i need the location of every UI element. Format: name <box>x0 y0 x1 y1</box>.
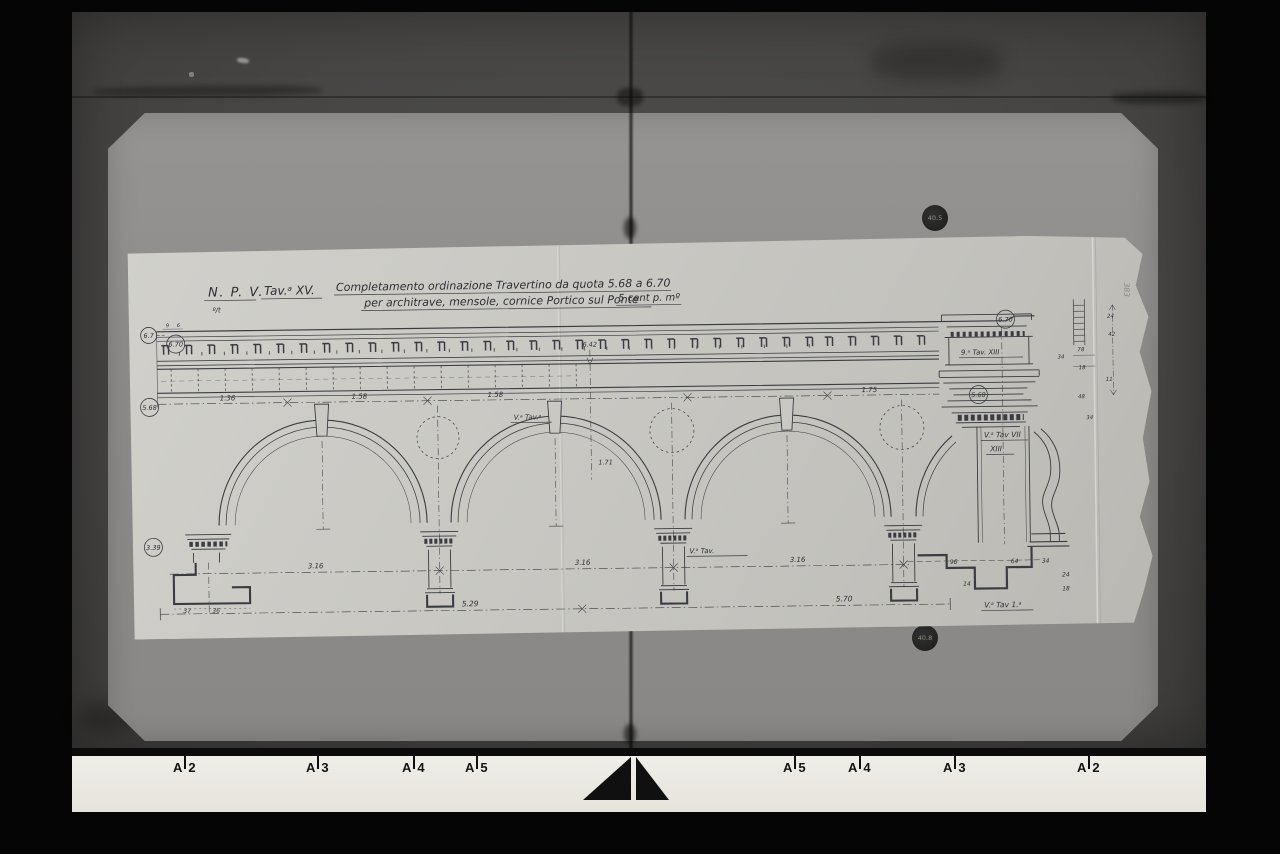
tav-reference: V.ᵃ Tav. <box>689 547 714 555</box>
ruler-tick <box>859 755 861 769</box>
ruler-tick <box>794 755 796 769</box>
ruler-letter: A <box>173 760 182 775</box>
ruler-mark-right-a2: A2 <box>1077 760 1100 775</box>
cornice-lines <box>157 327 939 341</box>
ruler-number: 2 <box>188 760 195 775</box>
ruler-letter: A <box>306 760 315 775</box>
micro-dim: 6 <box>177 323 180 329</box>
title-mark: º/t <box>212 306 221 314</box>
keystone <box>548 401 562 433</box>
dim-label: 5.70 <box>836 594 853 603</box>
ruler-number: 3 <box>321 760 328 775</box>
sheet-fold-right <box>1092 237 1097 627</box>
profile-dim: 42 <box>1108 332 1116 338</box>
dim-label: 1.58 <box>488 391 504 399</box>
ruler-letter: A <box>402 760 411 775</box>
ruler-number: 4 <box>863 760 870 775</box>
right-entablature-moldings <box>938 314 1039 428</box>
scratch <box>189 72 194 77</box>
edge-stamp-text: 383 <box>1122 283 1131 298</box>
left-plan-heavy <box>174 562 251 604</box>
board-stamp-top: 40.5 <box>922 205 948 231</box>
ruler-tick <box>184 755 186 769</box>
level-label: 6.7 <box>143 332 154 340</box>
ruler-number: 2 <box>1092 760 1099 775</box>
console-profile <box>1034 432 1052 542</box>
level-label: 6.70 <box>998 316 1013 324</box>
level-label: 5.68 <box>971 391 986 399</box>
ruler-letter: A <box>1077 760 1086 775</box>
seam-fastener <box>624 217 636 239</box>
underlines <box>204 286 1033 621</box>
egg-band <box>958 417 1024 418</box>
plan-dim: 37 <box>183 608 191 615</box>
overall-dim-ends <box>160 598 950 620</box>
ruler-mark-right-a3: A3 <box>943 760 966 775</box>
ruler-mark-left-a5: A5 <box>465 760 488 775</box>
axis-lines <box>206 328 1006 614</box>
arch-4-partial-inner <box>922 442 957 516</box>
capital-scallop-band <box>424 535 918 541</box>
tav-reference: V.ᵃ Tav.ᵃ <box>514 413 542 421</box>
dim-label: 3.16 <box>575 559 591 567</box>
ruler-tick <box>413 755 415 769</box>
profile-dim: 18 <box>1079 365 1087 371</box>
right-pier-inner-lines <box>981 426 1027 543</box>
span-dim-line <box>170 564 910 574</box>
ink-linework <box>139 285 1119 622</box>
smudge <box>872 42 1002 82</box>
arch-4-partial <box>915 436 953 516</box>
smudge <box>1112 92 1206 104</box>
ruler-letter: A <box>783 760 792 775</box>
center-cross-ticks <box>316 523 795 529</box>
ruler-mark-right-a4: A4 <box>848 760 871 775</box>
right-plan-leader <box>908 560 1042 562</box>
quota-label: 6.42 <box>582 341 597 349</box>
ruler-letter: A <box>465 760 474 775</box>
plan-dim: 96 <box>950 559 958 566</box>
photo-area: 40.5 40.8 <box>72 12 1206 812</box>
dim-label: 1.58 <box>352 393 368 401</box>
title-npv: N. P. V. <box>208 285 264 301</box>
keystone <box>780 398 794 430</box>
table-edge-bar <box>72 748 1206 756</box>
quota-label: 1.71 <box>598 458 613 466</box>
profile-dim: 48 <box>1078 394 1086 400</box>
plan-dim: 18 <box>1062 585 1070 592</box>
dim-label: 3.16 <box>308 562 324 570</box>
modillion-caps <box>161 337 815 346</box>
ruler-number: 5 <box>798 760 805 775</box>
ruler-letter: A <box>848 760 857 775</box>
ruler-mark-left-a2: A2 <box>173 760 196 775</box>
level-label: 6.70 <box>168 340 183 348</box>
ruler-mark-left-a3: A3 <box>306 760 329 775</box>
ruler-mark-left-a4: A4 <box>402 760 425 775</box>
profile-dim: 34 <box>1086 415 1094 421</box>
left-pier-capital <box>185 534 231 563</box>
plan-dim: 34 <box>1042 558 1050 565</box>
dim-label: 3.16 <box>790 556 806 564</box>
modillion-legs <box>163 342 815 351</box>
overall-dim-line <box>160 604 950 614</box>
ruler-letter: A <box>943 760 952 775</box>
profile-dim: 34 <box>1057 354 1065 360</box>
right-plan-heavy <box>917 547 1032 589</box>
ruler-number: 5 <box>480 760 487 775</box>
ruler-tick <box>476 755 478 769</box>
keystone <box>315 404 329 436</box>
taenia-lines <box>157 351 939 366</box>
tav-reference: 9.ᵃ Tav. XIII <box>961 348 1000 357</box>
profile-dim: 24 <box>1107 314 1115 320</box>
architrave-mid-dash <box>161 376 573 381</box>
ruler-number: 3 <box>958 760 965 775</box>
arcade-drawing: N. P. V. Tav.ᵃ XV. Completamento ordinaz… <box>125 234 1154 639</box>
ruler-number: 4 <box>417 760 424 775</box>
plan-dim: 64 <box>1011 558 1019 565</box>
plan-dim: 24 <box>1062 571 1070 578</box>
photo-stage: 40.5 40.8 <box>0 0 1280 854</box>
console-profile-outer <box>1041 429 1061 542</box>
tav-reference: V.ᵃ Tav 1.ᵃ <box>984 600 1021 609</box>
title-tav: Tav.ᵃ XV. <box>264 283 315 298</box>
ruler-mark-right-a5: A5 <box>783 760 806 775</box>
plan-dim: 14 <box>963 581 971 588</box>
title-line2: per architrave, mensole, cornice Portico… <box>363 293 639 310</box>
tav-reference: V.ᵃ Tav VII <box>984 430 1022 439</box>
board-stamp-top-text: 40.5 <box>928 214 942 222</box>
modillion-ticks <box>179 346 813 354</box>
scale-note: 5 cent p. mº <box>618 292 680 304</box>
profile-dim: 11 <box>1106 377 1113 383</box>
edge-ladder-rungs <box>1073 305 1084 341</box>
tav-reference: XIII <box>989 444 1003 453</box>
profile-dim: 78 <box>1077 347 1085 353</box>
dim-label: 5.29 <box>462 599 479 608</box>
plan-dim: 36 <box>212 608 220 615</box>
architrave-soffit <box>157 388 939 398</box>
micro-dim: 9 <box>166 323 169 329</box>
board-stamp-bottom: 40.8 <box>912 625 938 651</box>
cornice-top-line <box>157 316 1035 332</box>
drawing-sheet: N. P. V. Tav.ᵃ XV. Completamento ordinaz… <box>125 234 1154 639</box>
level-label: 5.68 <box>142 404 157 412</box>
edge-ladder-rails <box>1073 299 1085 345</box>
dim-label: 1.75 <box>862 386 878 394</box>
console-plinth <box>1027 533 1069 546</box>
board-stamp-bottom-text: 40.8 <box>918 634 932 642</box>
level-label: 3.39 <box>146 544 161 552</box>
dim-label: 1.36 <box>220 394 236 402</box>
ruler-tick <box>317 755 319 769</box>
seam-fastener <box>624 724 636 744</box>
modillion-legs <box>827 340 937 341</box>
ruler-tick <box>1088 755 1090 769</box>
dentil-band <box>951 333 1025 334</box>
ruler-tick <box>954 755 956 769</box>
